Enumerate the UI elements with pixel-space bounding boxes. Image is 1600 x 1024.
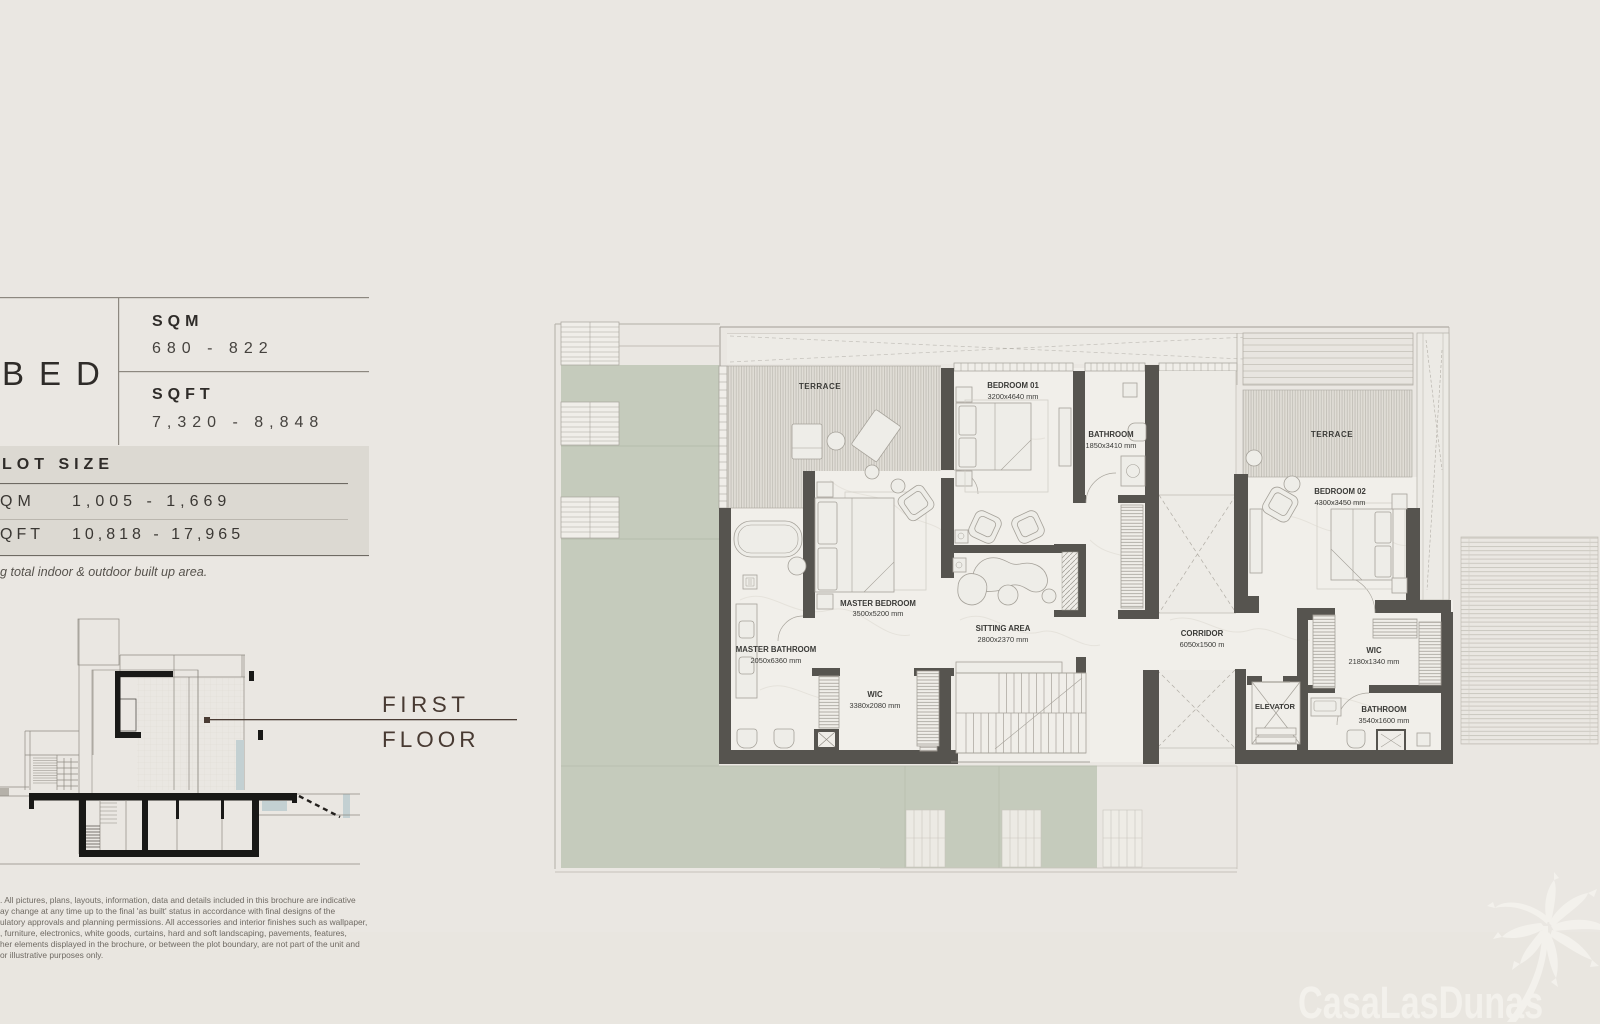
svg-text:4300x3450 mm: 4300x3450 mm: [1315, 498, 1366, 507]
svg-text:CORRIDOR: CORRIDOR: [1181, 629, 1224, 638]
svg-text:2050x6360 mm: 2050x6360 mm: [751, 656, 802, 665]
svg-text:BATHROOM: BATHROOM: [1361, 705, 1406, 714]
svg-text:680 - 822: 680 - 822: [152, 340, 274, 357]
svg-text:WIC: WIC: [1366, 646, 1382, 655]
svg-text:BEDROOM 02: BEDROOM 02: [1314, 487, 1366, 496]
svg-text:LOT SIZE: LOT SIZE: [2, 456, 114, 473]
svg-text:SITTING AREA: SITTING AREA: [976, 624, 1031, 633]
svg-text:QFT: QFT: [0, 526, 44, 543]
svg-text:3380x2080 mm: 3380x2080 mm: [850, 701, 901, 710]
svg-text:or illustrative purposes only.: or illustrative purposes only.: [0, 950, 103, 960]
svg-text:3500x5200 mm: 3500x5200 mm: [853, 609, 904, 618]
svg-text:. All pictures, plans, layouts: . All pictures, plans, layouts, informat…: [0, 895, 356, 905]
svg-text:BEDROOM 01: BEDROOM 01: [987, 381, 1039, 390]
svg-text:7,320 - 8,848: 7,320 - 8,848: [152, 414, 324, 431]
svg-text:3540x1600 mm: 3540x1600 mm: [1359, 716, 1410, 725]
svg-text:2800x2370 mm: 2800x2370 mm: [978, 635, 1029, 644]
svg-text:1850x3410 mm: 1850x3410 mm: [1086, 441, 1137, 450]
svg-text:her elements displayed in the: her elements displayed in the brochure, …: [0, 939, 360, 949]
svg-text:SQFT: SQFT: [152, 386, 215, 403]
svg-text:WIC: WIC: [867, 690, 883, 699]
svg-text:CasaLasDunas: CasaLasDunas: [1298, 979, 1543, 1024]
svg-text:g total indoor & outdoor built: g total indoor & outdoor built up area.: [0, 565, 207, 579]
svg-text:3200x4640 mm: 3200x4640 mm: [988, 392, 1039, 401]
svg-text:, furniture, electronics, whit: , furniture, electronics, white goods, c…: [0, 928, 347, 938]
svg-text:BATHROOM: BATHROOM: [1088, 430, 1133, 439]
svg-text:FIRST: FIRST: [382, 692, 470, 717]
svg-text:ELEVATOR: ELEVATOR: [1255, 702, 1296, 711]
svg-text:1,005 - 1,669: 1,005 - 1,669: [72, 493, 231, 510]
svg-text:2180x1340 mm: 2180x1340 mm: [1349, 657, 1400, 666]
svg-text:ulatory approvals and planning: ulatory approvals and planning permissio…: [0, 917, 367, 927]
svg-text:FLOOR: FLOOR: [382, 727, 480, 752]
svg-text:6050x1500 m: 6050x1500 m: [1180, 640, 1225, 649]
svg-text:TERRACE: TERRACE: [799, 382, 841, 391]
svg-text:TERRACE: TERRACE: [1311, 430, 1353, 439]
svg-text:SQM: SQM: [152, 313, 203, 330]
svg-text:MASTER BEDROOM: MASTER BEDROOM: [840, 599, 916, 608]
svg-text:MASTER BATHROOM: MASTER BATHROOM: [736, 645, 816, 654]
svg-text:ay change at any time up to th: ay change at any time up to the final 'a…: [0, 906, 335, 916]
svg-text:QM: QM: [0, 493, 36, 510]
svg-text:BED: BED: [2, 355, 115, 392]
svg-text:10,818 - 17,965: 10,818 - 17,965: [72, 526, 244, 543]
